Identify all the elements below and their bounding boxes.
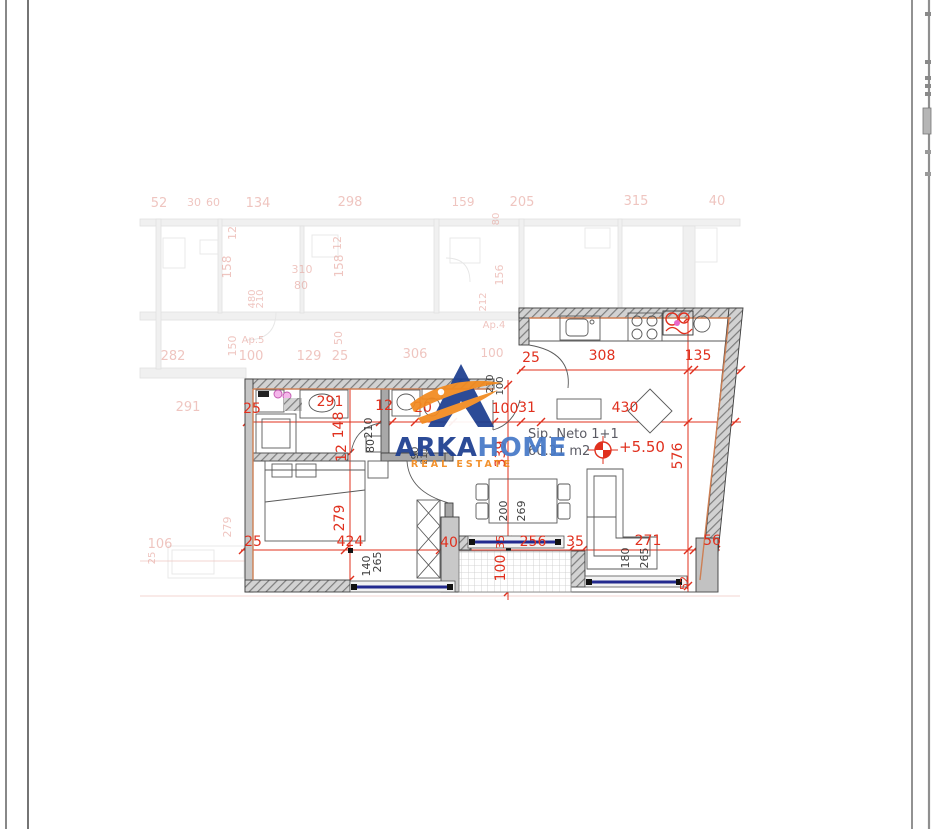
dim-label: 306 [403, 347, 428, 362]
dim-label: 25 [243, 401, 261, 417]
dim-label: 265 [371, 552, 384, 573]
washing-machine [256, 390, 302, 412]
dim-label: Ap.5 [242, 335, 265, 346]
dim-label: 52 [678, 576, 691, 590]
dim-label: 100 [239, 349, 264, 364]
dim-label: 150 [226, 336, 239, 357]
dim-label: 210 [362, 418, 375, 439]
dim-label: 315 [624, 194, 649, 209]
dim-label: 298 [338, 195, 363, 210]
dim-label: 31 [518, 400, 536, 416]
dim-label: 282 [161, 349, 186, 364]
dim-label: 100 [481, 346, 504, 360]
dim-label: 12 [334, 444, 350, 462]
dim-label: 40 [709, 194, 726, 209]
dim-label: 158 [332, 255, 346, 278]
dim-label: 60 [206, 196, 220, 209]
dim-label: 40 [440, 535, 458, 551]
dim-label: 279 [221, 517, 234, 538]
dim-label: 50 [332, 331, 345, 345]
dim-label: 80 [491, 213, 502, 226]
dim-label: 25 [147, 552, 158, 565]
dim-label: 310 [292, 263, 313, 276]
unit-level: +5.50 [619, 438, 665, 456]
dim-label: 265 [638, 548, 651, 569]
sheet-border-right [912, 0, 931, 829]
entry-cabinet [557, 399, 601, 419]
dim-label: 12 [226, 226, 239, 240]
dim-label: 12 [331, 236, 344, 250]
dim-label: 180 [619, 548, 632, 569]
dim-label: 25 [522, 350, 540, 366]
dim-label: 134 [246, 196, 271, 211]
dim-label: 430 [612, 400, 639, 416]
shower-inner [262, 419, 290, 448]
dim-label: 30 [187, 196, 201, 209]
dim-label: 212 [478, 292, 489, 311]
logo-tagline: REAL ESTATE [411, 459, 513, 470]
dim-label: 106 [148, 537, 173, 552]
dim-label: 148 [331, 412, 347, 439]
nightstand [368, 461, 388, 478]
dim-label: 35 [494, 535, 507, 549]
dim-label: 129 [297, 349, 322, 364]
dim-label: 279 [332, 505, 348, 532]
dim-label: 210 [255, 289, 266, 308]
bedroom-window [350, 581, 455, 592]
dim-label: 205 [510, 195, 535, 210]
dim-label: 135 [685, 348, 712, 364]
dim-label: 25 [332, 349, 349, 364]
dim-label: 291 [176, 400, 201, 415]
dim-label: 156 [493, 265, 506, 286]
dim-label: 424 [337, 534, 364, 550]
mountain-icon [410, 364, 503, 427]
dim-label: 158 [220, 256, 234, 279]
dim-label: 80 [294, 279, 308, 292]
dim-label: 80 [364, 439, 377, 453]
dim-label: 12 [375, 398, 393, 414]
dim-label: 291 [317, 394, 344, 410]
dim-label: Ap.4 [483, 320, 506, 331]
balcony-tiles [459, 551, 571, 592]
wardrobe [417, 500, 440, 578]
sofa-window [585, 576, 687, 587]
dim-label: 56 [703, 533, 721, 549]
dim-label: 25 [244, 534, 262, 550]
dim-label: 256 [520, 534, 547, 550]
dim-label: 52 [151, 196, 168, 211]
dim-label: 100 [493, 555, 509, 582]
dim-label: 100 [492, 401, 519, 417]
dim-label: 269 [515, 501, 528, 522]
wall-bottom-bedroom [245, 580, 350, 592]
dim-label: 200 [497, 501, 510, 522]
dim-label: 308 [589, 348, 616, 364]
dim-label: 159 [452, 195, 475, 209]
dim-label: 271 [635, 533, 662, 549]
dim-label: 576 [670, 443, 686, 470]
floor-plan-page: 5230601342981592053154012158121583108048… [0, 0, 933, 829]
living-window [468, 536, 564, 548]
dim-label: 35 [566, 534, 584, 550]
floor-plan-drawing: 5230601342981592053154012158121583108048… [0, 0, 933, 829]
sheet-border-left [6, 0, 28, 829]
dim-label: 100 [495, 376, 506, 395]
